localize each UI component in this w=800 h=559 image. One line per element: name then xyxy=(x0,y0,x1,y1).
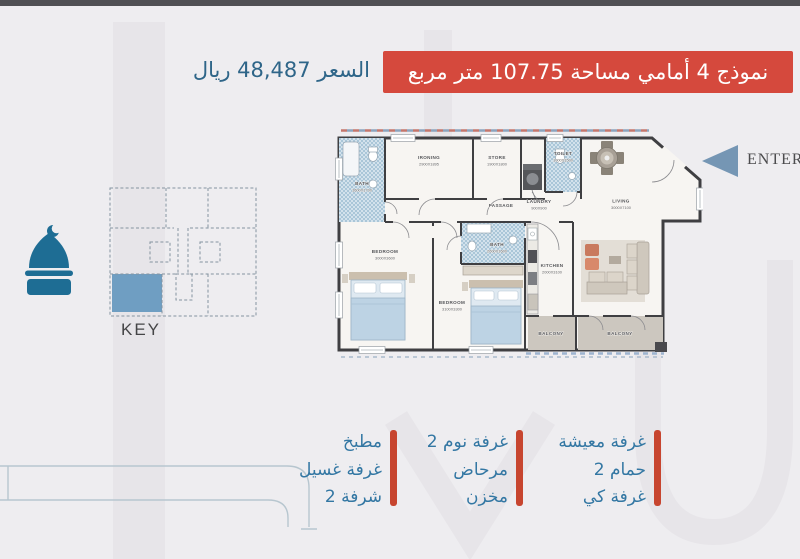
room-dims: 1600X1700 xyxy=(352,188,373,193)
feature-item: 2 حمام xyxy=(558,457,646,485)
bed-bedroom-2 xyxy=(462,280,523,344)
room-label: PASSAGE xyxy=(489,203,514,208)
room-label: BATH xyxy=(490,242,504,247)
room-label: LIVING xyxy=(612,199,629,204)
room-dims: 3000X7100 xyxy=(611,205,632,210)
feature-column-middle: 2 غرفة نوم مرحاض مخزن xyxy=(414,429,523,513)
feature-column-right: غرفة معيشة 2 حمام غرفة كي xyxy=(554,429,661,513)
room-dims: 2900X1895 xyxy=(419,162,439,167)
room-dims: 2600X1600 xyxy=(487,249,508,254)
room-label: BEDROOM xyxy=(439,300,465,305)
room-label: IRONING xyxy=(418,155,440,160)
feature-item: غرفة معيشة xyxy=(558,429,646,457)
room-label: STORE xyxy=(488,155,506,160)
bed-bedroom-1 xyxy=(342,272,415,340)
feature-item: 2 غرفة نوم xyxy=(427,429,508,457)
feature-item: غرفة كي xyxy=(558,484,646,512)
room-dims: 2000X3100 xyxy=(542,270,563,275)
kitchen-counter xyxy=(527,224,538,314)
feature-item: 2 شرفة xyxy=(299,484,382,512)
unit-title-banner: نموذج 4 أمامي مساحة 107.75 متر مربع xyxy=(383,51,793,93)
key-map xyxy=(104,184,262,320)
room-label: BALCONY xyxy=(538,331,563,336)
wardrobe xyxy=(463,266,523,275)
price-text: السعر 48,487 ريال xyxy=(193,58,370,82)
room-label: LAUNDRY xyxy=(527,199,552,204)
enter-label: ENTER xyxy=(747,151,800,169)
key-map-highlight-unit xyxy=(112,274,162,312)
flyer-page: نموذج 4 أمامي مساحة 107.75 متر مربع السع… xyxy=(0,0,800,559)
enter-arrow-icon xyxy=(702,145,738,177)
feature-divider-bar xyxy=(390,430,397,506)
room-dims: 1000X1500 xyxy=(553,158,574,163)
room-label: TOILET xyxy=(554,151,572,156)
sofa-set xyxy=(581,240,649,302)
room-label: BALCONY xyxy=(607,331,632,336)
floor-plan: BATH 1600X1700 IRONING 2900X1895 STORE 1… xyxy=(333,124,703,374)
room-label: BEDROOM xyxy=(372,249,398,254)
feature-item: غرفة غسيل xyxy=(299,457,382,485)
room-label: BATH xyxy=(355,181,369,186)
room-dims: 3000X3600 xyxy=(375,256,396,261)
mosque-dome-icon xyxy=(20,221,78,295)
feature-column-left: مطبخ غرفة غسيل 2 شرفة xyxy=(287,429,397,513)
key-map-label: KEY xyxy=(121,320,161,340)
room-dims: 1900X1800 xyxy=(487,162,508,167)
top-bar xyxy=(0,0,800,6)
feature-divider-bar xyxy=(654,430,661,506)
feature-item: مرحاض xyxy=(427,457,508,485)
feature-divider-bar xyxy=(516,430,523,506)
room-dims: 900X900 xyxy=(531,206,547,211)
feature-item: مطبخ xyxy=(299,429,382,457)
feature-item: مخزن xyxy=(427,484,508,512)
room-dims: 3100X3300 xyxy=(442,307,463,312)
room-label: KITCHEN xyxy=(541,263,564,268)
